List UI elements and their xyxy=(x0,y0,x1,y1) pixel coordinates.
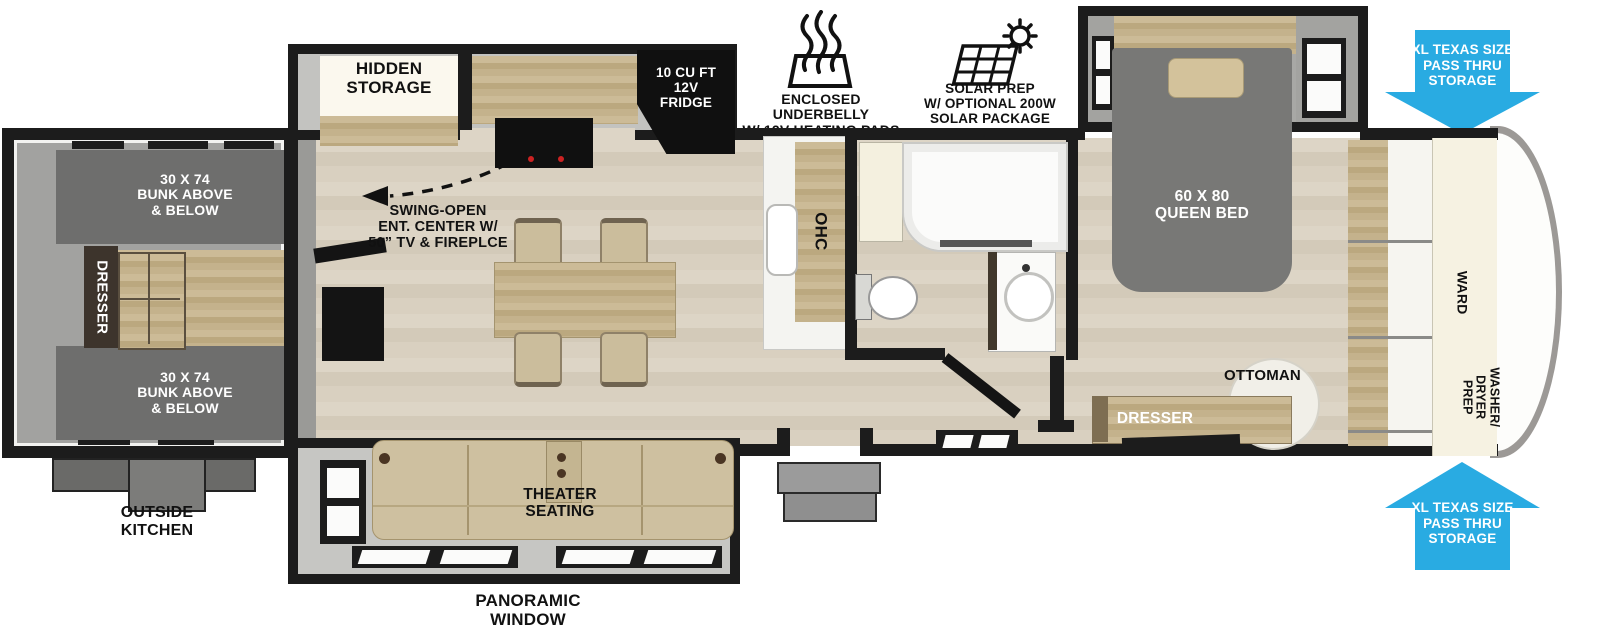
dining-chair xyxy=(514,332,562,387)
bunkroom-cabinet xyxy=(118,252,186,350)
bunk-bottom-label: 30 X 74 BUNK ABOVE & BELOW xyxy=(90,370,280,416)
ohc-label: OHC xyxy=(811,201,830,261)
bathroom-wall-bottom xyxy=(845,348,945,360)
bed-pillow xyxy=(1168,58,1244,98)
floorplan-canvas: ENCLOSED UNDERBELLY W/ 12V HEATING PADS … xyxy=(0,0,1600,635)
shower xyxy=(902,142,1068,252)
vanity-side xyxy=(988,252,997,350)
bunkroom-wall-top xyxy=(2,128,298,140)
dining-chair xyxy=(600,332,648,387)
bunkroom-dresser-label: DRESSER xyxy=(93,237,110,357)
bunkroom-wall-left xyxy=(2,128,14,458)
outside-kitchen-label: OUTSIDE KITCHEN xyxy=(62,504,252,539)
ent-center-label: SWING-OPEN ENT. CENTER W/ 50” TV & FIREP… xyxy=(348,204,528,252)
rear-window xyxy=(936,430,1018,456)
bunk-top-label: 30 X 74 BUNK ABOVE & BELOW xyxy=(90,172,280,218)
vanity-sink xyxy=(1004,272,1054,322)
theater-seating-label: THEATER SEATING xyxy=(470,486,650,520)
bathroom-wall-left xyxy=(845,128,857,360)
bedroom-dresser-label: DRESSER xyxy=(1100,410,1210,427)
toilet-bowl xyxy=(868,276,918,320)
entry-door-jamb-right xyxy=(860,428,873,456)
bunkroom-window-slit xyxy=(72,141,124,149)
ward-label: WARD xyxy=(1454,243,1469,343)
pass-thru-top-label: XL TEXAS SIZE PASS THRU STORAGE xyxy=(1400,42,1525,89)
bunkroom-wall-bottom xyxy=(2,446,298,458)
linen-cabinet xyxy=(859,142,903,242)
queen-bed-label: 60 X 80 QUEEN BED xyxy=(1110,188,1294,222)
dining-table xyxy=(494,262,676,338)
washer-dryer-label: WASHER/ DRYER PREP xyxy=(1460,347,1501,447)
pass-thru-bottom-label: XL TEXAS SIZE PASS THRU STORAGE xyxy=(1400,500,1525,547)
hall-wall xyxy=(1050,356,1064,430)
shower-door xyxy=(940,240,1032,247)
living-left-wall-face xyxy=(298,140,316,444)
hall-wall-return xyxy=(1038,420,1074,432)
kitchen-sink xyxy=(766,204,798,276)
entertainment-center xyxy=(322,287,384,361)
heating-pads-icon xyxy=(782,10,858,92)
kitchen-counter xyxy=(472,56,638,124)
hidden-storage-base xyxy=(320,116,458,146)
hidden-storage-label: HIDDEN STORAGE xyxy=(322,60,456,97)
bedroom-window-right xyxy=(1302,38,1346,118)
entry-door-jamb-left xyxy=(777,428,790,456)
solar-prep-icon xyxy=(948,18,1040,88)
panoramic-window-left xyxy=(352,546,518,568)
theater-slide-window-left xyxy=(320,460,366,544)
bunkroom-window-slit xyxy=(224,141,274,149)
panoramic-window-label: PANORAMIC WINDOW xyxy=(428,592,628,629)
ottoman-label: OTTOMAN xyxy=(1180,368,1345,385)
solar-prep-label: SOLAR PREP W/ OPTIONAL 200W SOLAR PACKAG… xyxy=(905,82,1075,127)
wardrobe-shelving xyxy=(1348,140,1432,446)
kitchen-range xyxy=(495,118,593,168)
entry-step-2 xyxy=(783,492,877,522)
kitchen-slide-divider xyxy=(458,50,472,130)
entry-step-1 xyxy=(777,462,881,494)
bedroom-window-left xyxy=(1092,36,1114,110)
vanity-faucet xyxy=(1022,264,1030,272)
fridge-label: 10 CU FT 12V FRIDGE xyxy=(640,66,732,111)
bunkroom-window-slit xyxy=(148,141,208,149)
bunkroom-wall-right xyxy=(284,128,298,458)
panoramic-window-right xyxy=(556,546,722,568)
